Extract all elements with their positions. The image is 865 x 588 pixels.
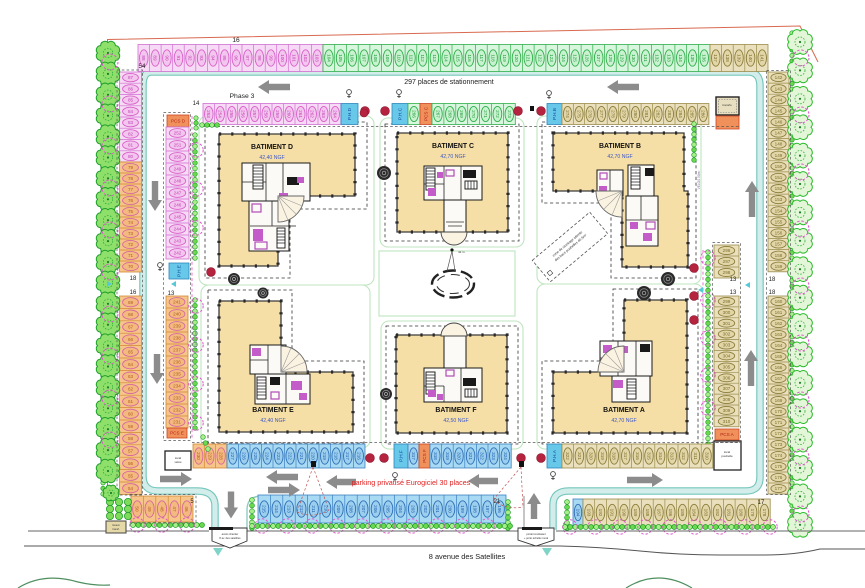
svg-text:171: 171 [775,420,783,425]
svg-text:305: 305 [723,365,731,370]
svg-text:185: 185 [680,509,685,517]
svg-text:306: 306 [723,375,731,380]
svg-text:172: 172 [775,431,783,436]
svg-text:227: 227 [230,452,235,460]
svg-text:207: 207 [361,505,366,513]
svg-text:BATIMENT A: BATIMENT A [603,407,645,414]
svg-text:63: 63 [128,374,134,379]
svg-text:128: 128 [608,54,613,62]
svg-text:21: 21 [494,499,501,505]
svg-text:302: 302 [723,332,731,337]
svg-text:poubelle: poubelle [721,454,733,458]
svg-text:281: 281 [644,110,649,118]
svg-text:48: 48 [159,506,164,512]
svg-text:240: 240 [173,312,181,317]
svg-text:83: 83 [128,120,134,125]
svg-text:198: 198 [472,505,477,513]
svg-text:218: 218 [334,452,339,460]
svg-text:216: 216 [357,452,362,460]
svg-text:66: 66 [128,337,134,342]
svg-text:54: 54 [139,63,146,70]
svg-text:224: 224 [265,452,270,460]
svg-text:234: 234 [173,384,181,389]
svg-text:228: 228 [219,452,224,460]
svg-text:204: 204 [398,505,403,513]
svg-text:214: 214 [274,505,279,513]
svg-text:258: 258 [264,110,269,118]
svg-text:78: 78 [128,176,134,181]
svg-text:319: 319 [445,452,450,460]
svg-text:46: 46 [184,506,189,512]
svg-text:115: 115 [455,54,460,62]
svg-text:318: 318 [433,452,438,460]
svg-text:283: 283 [667,110,672,118]
svg-text:144: 144 [775,97,783,102]
svg-text:297: 297 [723,259,731,264]
svg-text:253: 253 [206,110,211,118]
svg-text:247: 247 [174,191,182,196]
svg-text:180: 180 [738,509,743,517]
svg-text:P.H.F: P.H.F [399,450,405,462]
svg-text:183: 183 [703,509,708,517]
svg-text:96: 96 [234,55,239,61]
svg-text:106: 106 [350,54,355,62]
svg-text:166: 166 [775,365,783,370]
svg-text:82: 82 [128,132,134,137]
svg-text:296: 296 [723,248,731,253]
svg-text:282: 282 [655,110,660,118]
svg-text:229: 229 [207,452,212,460]
svg-text:148: 148 [775,142,783,147]
svg-text:309: 309 [723,408,731,413]
svg-text:150: 150 [775,164,783,169]
svg-text:parking privatisé Eurogiciel 3: parking privatisé Eurogiciel 30 places [352,478,471,487]
svg-text:42,50 NGF: 42,50 NGF [443,418,468,424]
svg-text:277: 277 [599,110,604,118]
svg-text:61: 61 [128,399,134,404]
svg-text:232: 232 [173,408,181,413]
svg-text:167: 167 [775,376,783,381]
svg-text:275: 275 [576,110,581,118]
svg-text:BATIMENT B: BATIMENT B [599,143,641,150]
svg-text:113: 113 [432,54,437,62]
svg-text:42,40 NGF: 42,40 NGF [260,418,285,424]
svg-text:320: 320 [588,452,593,460]
svg-text:47: 47 [172,506,177,512]
svg-text:locaux: locaux [112,523,120,527]
svg-text:226: 226 [242,452,247,460]
svg-text:93: 93 [199,55,204,61]
svg-text:P.H.A: P.H.A [552,449,558,462]
svg-text:250: 250 [174,155,182,160]
svg-text:310: 310 [704,452,709,460]
svg-text:244: 244 [174,227,182,232]
svg-text:152: 152 [775,186,783,191]
svg-text:111: 111 [408,55,413,62]
svg-text:P.H.B: P.H.B [552,108,558,120]
svg-text:158: 158 [775,253,783,258]
svg-text:BATIMENT E: BATIMENT E [252,407,294,414]
svg-text:189: 189 [633,509,638,517]
svg-text:129: 129 [620,54,625,62]
svg-text:50: 50 [135,506,140,512]
svg-text:312: 312 [681,452,686,460]
svg-text:99: 99 [268,55,273,61]
svg-text:PCS A: PCS A [720,432,734,437]
svg-text:315: 315 [646,452,651,460]
svg-text:245: 245 [174,215,182,220]
svg-text:100: 100 [280,54,285,62]
svg-text:254: 254 [218,110,223,118]
svg-text:vélos: vélos [174,460,182,464]
svg-text:112: 112 [420,54,425,62]
svg-text:59: 59 [128,424,134,429]
svg-text:131: 131 [643,54,648,62]
svg-text:177: 177 [775,486,783,491]
svg-text:126: 126 [584,54,589,62]
svg-text:273: 273 [507,110,512,118]
svg-text:193: 193 [586,509,591,517]
svg-text:80: 80 [128,154,134,159]
svg-text:92: 92 [187,55,192,61]
svg-text:212: 212 [299,505,304,513]
svg-text:222: 222 [288,452,293,460]
svg-text:175: 175 [775,464,783,469]
svg-text:266: 266 [411,110,416,118]
svg-text:56: 56 [128,461,134,466]
svg-text:16: 16 [232,37,240,44]
svg-text:248: 248 [174,179,182,184]
svg-text:308: 308 [723,397,731,402]
svg-text:235: 235 [173,372,181,377]
svg-text:123: 123 [549,54,554,62]
svg-text:127: 127 [596,54,601,62]
svg-text:147: 147 [775,131,783,136]
svg-text:85: 85 [128,98,134,103]
svg-text:237: 237 [173,348,181,353]
svg-text:233: 233 [173,396,181,401]
svg-text:259: 259 [275,110,280,118]
svg-text:102: 102 [303,54,308,62]
svg-text:264: 264 [333,110,338,118]
svg-text:267: 267 [435,110,440,118]
svg-text:246: 246 [174,203,182,208]
svg-text:249: 249 [174,167,182,172]
svg-text:124: 124 [561,54,566,62]
svg-text:151: 151 [775,175,783,180]
svg-text:accès chantier: accès chantier [222,532,239,536]
svg-text:316: 316 [635,452,640,460]
svg-text:101: 101 [292,54,297,62]
svg-text:272: 272 [495,110,500,118]
svg-text:241: 241 [173,300,181,305]
svg-text:13: 13 [730,290,737,296]
svg-text:201: 201 [435,505,440,513]
svg-text:67: 67 [128,325,134,330]
svg-text:VÉLOS 75m²: VÉLOS 75m² [193,331,198,350]
svg-text:318: 318 [612,452,617,460]
svg-text:242: 242 [174,251,182,256]
svg-text:323: 323 [491,452,496,460]
svg-text:transf.: transf. [112,527,119,531]
svg-text:138: 138 [725,54,730,62]
svg-text:142: 142 [775,75,783,80]
svg-text:320: 320 [456,452,461,460]
svg-text:284: 284 [678,110,683,118]
svg-text:184: 184 [692,509,697,517]
svg-text:298: 298 [723,270,731,275]
svg-text:297 places de stationnement: 297 places de stationnement [404,79,494,86]
svg-text:71: 71 [128,253,134,258]
svg-text:146: 146 [775,120,783,125]
svg-text:P.H.E: P.H.E [177,265,183,277]
svg-text:278: 278 [610,110,615,118]
svg-text:230: 230 [196,452,201,460]
svg-text:173: 173 [775,442,783,447]
svg-text:125: 125 [573,54,578,62]
svg-text:217: 217 [345,452,350,460]
svg-text:110: 110 [397,54,402,62]
svg-text:159: 159 [775,264,783,269]
svg-text:262: 262 [310,110,315,118]
svg-text:8 av. des satellites: 8 av. des satellites [219,536,241,540]
svg-text:324: 324 [503,452,508,460]
svg-text:213: 213 [286,505,291,513]
svg-text:140: 140 [748,54,753,62]
svg-text:203: 203 [410,505,415,513]
svg-text:299: 299 [723,299,731,304]
svg-text:322: 322 [565,452,570,460]
svg-text:84: 84 [128,109,134,114]
svg-text:196: 196 [497,505,502,513]
svg-text:69: 69 [128,300,134,305]
svg-text:205: 205 [386,505,391,513]
svg-text:118: 118 [491,54,496,62]
svg-text:252: 252 [174,131,182,136]
svg-text:261: 261 [298,110,303,118]
svg-text:14: 14 [193,101,200,107]
svg-text:322: 322 [480,452,485,460]
svg-text:211: 211 [311,505,316,513]
svg-text:145: 145 [775,108,783,113]
svg-text:116: 116 [467,54,472,62]
svg-text:310: 310 [723,419,731,424]
svg-text:197: 197 [485,505,490,513]
svg-text:portail coulissant: portail coulissant [526,532,546,536]
svg-text:268: 268 [447,110,452,118]
svg-text:104: 104 [326,54,331,62]
svg-text:271: 271 [483,110,488,118]
svg-text:194: 194 [575,509,580,517]
svg-text:BATIMENT C: BATIMENT C [432,143,474,150]
svg-text:206: 206 [373,505,378,513]
svg-text:42,70 NGF: 42,70 NGF [611,418,636,424]
svg-text:103: 103 [315,54,320,62]
svg-text:169: 169 [775,398,783,403]
svg-text:314: 314 [658,452,663,460]
svg-text:276: 276 [588,110,593,118]
svg-text:97: 97 [245,55,250,61]
svg-text:137: 137 [713,54,718,62]
svg-text:135: 135 [690,54,695,62]
svg-text:220: 220 [311,452,316,460]
svg-text:178: 178 [762,509,767,517]
svg-text:179: 179 [750,509,755,517]
svg-text:321: 321 [468,452,473,460]
svg-text:64: 64 [128,362,134,367]
svg-text:307: 307 [723,386,731,391]
svg-text:70: 70 [128,264,134,269]
svg-text:192: 192 [598,509,603,517]
svg-text:200: 200 [448,505,453,513]
svg-text:286: 286 [701,110,706,118]
svg-text:260: 260 [287,110,292,118]
svg-text:73: 73 [128,231,134,236]
svg-text:165: 165 [775,354,783,359]
svg-text:95: 95 [222,55,227,61]
svg-text:256: 256 [241,110,246,118]
svg-text:74: 74 [128,220,134,225]
svg-text:219: 219 [322,452,327,460]
svg-text:317: 317 [411,452,416,460]
svg-text:149: 149 [775,153,783,158]
svg-text:285: 285 [689,110,694,118]
svg-text:157: 157 [775,242,783,247]
svg-text:170: 170 [775,409,783,414]
svg-text:105: 105 [338,54,343,62]
svg-text:239: 239 [173,324,181,329]
svg-text:58: 58 [128,436,134,441]
svg-text:223: 223 [276,452,281,460]
svg-text:13: 13 [730,277,737,283]
svg-text:141: 141 [760,54,765,62]
svg-text:72: 72 [128,242,134,247]
svg-text:90: 90 [164,55,169,61]
svg-text:319: 319 [600,452,605,460]
svg-text:136: 136 [702,54,707,62]
svg-text:202: 202 [423,505,428,513]
svg-text:PCS C: PCS C [424,106,429,121]
svg-text:164: 164 [775,343,783,348]
svg-text:122: 122 [537,54,542,62]
svg-text:PCS E: PCS E [170,431,184,436]
svg-text:42 m: 42 m [458,250,465,254]
svg-text:163: 163 [775,332,783,337]
svg-text:86: 86 [128,87,134,92]
svg-text:313: 313 [670,452,675,460]
svg-text:303: 303 [723,343,731,348]
svg-text:98: 98 [257,55,262,61]
svg-text:155: 155 [775,219,783,224]
svg-text:54: 54 [128,486,134,491]
svg-text:8 avenue des Satellites: 8 avenue des Satellites [429,552,506,561]
svg-text:221: 221 [299,452,304,460]
svg-text:81: 81 [128,143,134,148]
svg-text:17: 17 [758,500,765,506]
svg-text:251: 251 [174,143,182,148]
svg-text:280: 280 [633,110,638,118]
svg-text:VÉLOS 50m²: VÉLOS 50m² [696,171,701,190]
svg-text:311: 311 [693,452,698,460]
svg-text:87: 87 [128,75,134,80]
svg-text:55: 55 [128,473,134,478]
svg-text:236: 236 [173,360,181,365]
svg-text:49: 49 [147,506,152,512]
svg-text:79: 79 [128,165,134,170]
svg-text:P.H.D: P.H.D [347,107,353,120]
svg-text:132: 132 [655,54,660,62]
svg-text:321: 321 [577,452,582,460]
svg-text:154: 154 [775,208,783,213]
svg-text:301: 301 [723,321,731,326]
svg-text:231: 231 [173,420,181,425]
svg-text:16: 16 [130,290,137,296]
svg-text:187: 187 [656,509,661,517]
svg-text:243: 243 [174,239,182,244]
svg-text:42,70 NGF: 42,70 NGF [607,154,632,160]
svg-text:176: 176 [775,475,783,480]
svg-text:18: 18 [769,290,776,296]
svg-text:263: 263 [321,110,326,118]
svg-text:208: 208 [348,505,353,513]
svg-text:88: 88 [141,55,146,61]
svg-text:162: 162 [775,321,783,326]
svg-text:133: 133 [666,54,671,62]
svg-text:274: 274 [565,110,570,118]
svg-text:121: 121 [526,54,531,62]
svg-text:108: 108 [373,54,378,62]
svg-text:60: 60 [128,411,134,416]
svg-text:94: 94 [211,55,216,61]
svg-text:279: 279 [622,110,627,118]
svg-text:270: 270 [471,110,476,118]
svg-text:42,40 NGF: 42,40 NGF [259,155,284,161]
svg-text:120: 120 [514,54,519,62]
svg-text:269: 269 [459,110,464,118]
svg-text:209: 209 [336,505,341,513]
svg-text:18: 18 [130,276,137,282]
svg-text:199: 199 [460,505,465,513]
svg-text:107: 107 [362,54,367,62]
svg-text:191: 191 [610,509,615,517]
svg-text:143: 143 [775,86,783,91]
svg-text:transfo: transfo [722,103,732,107]
svg-text:174: 174 [775,453,783,458]
svg-text:182: 182 [715,509,720,517]
svg-text:BATIMENT D: BATIMENT D [251,144,293,151]
svg-text:119: 119 [502,54,507,62]
svg-text:75: 75 [128,209,134,214]
svg-text:91: 91 [176,55,181,61]
svg-text:317: 317 [623,452,628,460]
svg-text:62: 62 [128,387,134,392]
svg-text:BATIMENT F: BATIMENT F [435,407,476,414]
svg-text:Phase 3: Phase 3 [230,93,255,100]
svg-text:117: 117 [479,54,484,62]
svg-text:168: 168 [775,387,783,392]
svg-text:76: 76 [128,198,134,203]
svg-text:255: 255 [229,110,234,118]
svg-text:65: 65 [128,349,134,354]
svg-text:300: 300 [723,310,731,315]
svg-text:215: 215 [262,505,267,513]
svg-text:188: 188 [645,509,650,517]
svg-text:139: 139 [736,54,741,62]
svg-text:186: 186 [668,509,673,517]
svg-text:257: 257 [252,110,257,118]
svg-text:77: 77 [128,187,134,192]
svg-text:42,70 NGF: 42,70 NGF [440,154,465,160]
